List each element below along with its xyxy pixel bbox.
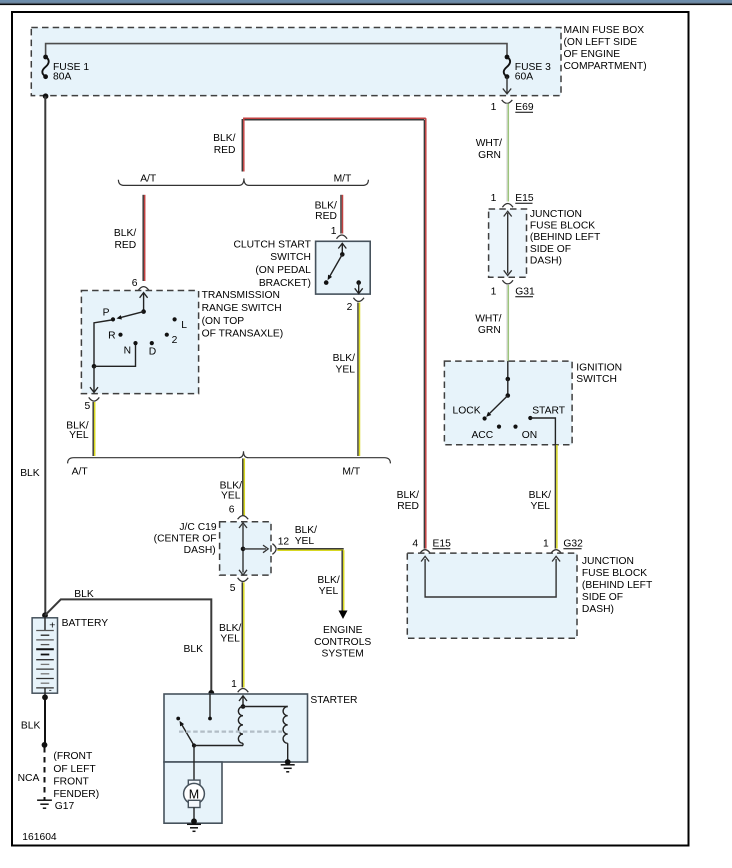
svg-text:J/C C19: J/C C19 (179, 522, 216, 533)
svg-text:MAIN FUSE BOX: MAIN FUSE BOX (564, 25, 645, 36)
svg-text:WHT/: WHT/ (476, 138, 502, 149)
svg-text:FENDER): FENDER) (53, 789, 99, 800)
svg-text:JUNCTION: JUNCTION (582, 556, 634, 567)
svg-text:IGNITION: IGNITION (576, 362, 622, 373)
svg-text:A/T: A/T (72, 466, 89, 477)
svg-text:2: 2 (172, 335, 178, 346)
svg-text:N: N (124, 345, 131, 356)
svg-text:BLK: BLK (74, 589, 94, 600)
svg-text:BLK: BLK (184, 644, 204, 655)
svg-text:(CENTER OF: (CENTER OF (154, 534, 217, 545)
svg-text:L: L (181, 320, 187, 331)
svg-text:5: 5 (84, 401, 90, 412)
svg-text:E15: E15 (433, 539, 452, 550)
svg-text:2: 2 (347, 302, 353, 313)
svg-text:80A: 80A (53, 72, 71, 83)
svg-text:5: 5 (230, 583, 236, 594)
svg-text:SIDE OF: SIDE OF (530, 244, 571, 255)
svg-text:YEL: YEL (295, 536, 315, 547)
svg-text:BLK/: BLK/ (114, 228, 136, 239)
svg-text:RANGE SWITCH: RANGE SWITCH (202, 303, 282, 314)
svg-text:+: + (49, 619, 55, 631)
svg-text:FRONT: FRONT (53, 776, 89, 787)
svg-text:BLK/: BLK/ (333, 353, 355, 364)
svg-text:COMPARTMENT): COMPARTMENT) (564, 61, 647, 72)
svg-text:G31: G31 (515, 287, 535, 298)
svg-text:(BEHIND LEFT: (BEHIND LEFT (582, 580, 653, 591)
svg-text:60A: 60A (515, 72, 533, 83)
svg-text:YEL: YEL (220, 633, 240, 644)
svg-text:BLK: BLK (20, 468, 40, 479)
svg-text:D: D (149, 346, 156, 357)
svg-text:GRN: GRN (478, 150, 501, 161)
svg-text:1: 1 (543, 539, 549, 550)
svg-text:1: 1 (491, 193, 497, 204)
svg-text:TRANSMISSION: TRANSMISSION (202, 290, 280, 301)
svg-text:BLK/: BLK/ (397, 490, 419, 501)
svg-text:161604: 161604 (22, 832, 57, 843)
svg-text:RED: RED (315, 211, 337, 222)
svg-text:WHT/: WHT/ (475, 314, 501, 325)
svg-text:BLK/: BLK/ (315, 201, 337, 212)
svg-text:6: 6 (132, 278, 138, 289)
svg-text:M: M (189, 787, 199, 801)
svg-text:YEL: YEL (319, 586, 339, 597)
svg-text:6: 6 (229, 504, 235, 515)
svg-text:E15: E15 (515, 193, 534, 204)
svg-text:GRN: GRN (478, 325, 501, 336)
svg-text:NCA: NCA (18, 773, 40, 784)
svg-text:G32: G32 (563, 539, 583, 550)
svg-text:(ON TOP: (ON TOP (202, 316, 245, 327)
svg-text:1: 1 (491, 102, 497, 113)
svg-text:M/T: M/T (334, 173, 352, 184)
svg-text:4: 4 (412, 539, 418, 550)
svg-text:OF LEFT: OF LEFT (53, 764, 96, 775)
svg-text:START: START (532, 406, 566, 417)
svg-text:-: - (49, 685, 52, 695)
svg-text:DASH): DASH) (184, 545, 216, 556)
svg-text:E69: E69 (515, 102, 534, 113)
svg-text:R: R (108, 330, 115, 341)
svg-text:BATTERY: BATTERY (62, 618, 109, 629)
svg-text:BLK/: BLK/ (317, 575, 339, 586)
svg-text:P: P (103, 308, 110, 319)
svg-text:OF TRANSAXLE): OF TRANSAXLE) (202, 329, 284, 340)
svg-text:A/T: A/T (140, 173, 157, 184)
svg-text:BLK/: BLK/ (213, 133, 235, 144)
svg-text:1: 1 (331, 226, 337, 237)
svg-text:YEL: YEL (69, 430, 89, 441)
svg-text:STARTER: STARTER (310, 695, 357, 706)
svg-text:(FRONT: (FRONT (53, 751, 93, 762)
svg-text:(ON LEFT SIDE: (ON LEFT SIDE (564, 37, 638, 48)
svg-text:(BEHIND LEFT: (BEHIND LEFT (530, 232, 601, 243)
svg-text:SWITCH: SWITCH (576, 374, 617, 385)
svg-text:SYSTEM: SYSTEM (322, 649, 364, 660)
svg-text:G17: G17 (55, 801, 75, 812)
svg-text:FUSE BLOCK: FUSE BLOCK (582, 568, 647, 579)
svg-text:DASH): DASH) (582, 604, 614, 615)
svg-text:BLK/: BLK/ (529, 490, 551, 501)
svg-text:M/T: M/T (342, 466, 360, 477)
svg-text:JUNCTION: JUNCTION (530, 209, 582, 220)
svg-text:1: 1 (491, 287, 497, 298)
svg-text:(ON PEDAL: (ON PEDAL (255, 265, 311, 276)
svg-text:FUSE BLOCK: FUSE BLOCK (530, 221, 595, 232)
svg-text:BLK/: BLK/ (295, 525, 317, 536)
svg-text:ENGINE: ENGINE (323, 625, 363, 636)
svg-text:SIDE OF: SIDE OF (582, 592, 623, 603)
svg-text:ACC: ACC (471, 430, 493, 441)
svg-text:YEL: YEL (531, 501, 551, 512)
svg-text:DASH): DASH) (530, 255, 562, 266)
svg-text:BLK: BLK (21, 720, 41, 731)
svg-text:LOCK: LOCK (453, 406, 481, 417)
svg-text:OF ENGINE: OF ENGINE (564, 49, 621, 60)
svg-text:12: 12 (278, 537, 290, 548)
svg-text:YEL: YEL (336, 364, 356, 375)
svg-text:SWITCH: SWITCH (270, 252, 311, 263)
svg-text:YEL: YEL (221, 490, 241, 501)
svg-text:RED: RED (214, 145, 236, 156)
svg-text:BRACKET): BRACKET) (259, 278, 311, 289)
svg-text:RED: RED (114, 240, 136, 251)
svg-text:1: 1 (231, 679, 237, 690)
svg-text:CONTROLS: CONTROLS (314, 637, 371, 648)
svg-text:ON: ON (522, 430, 537, 441)
svg-text:BLK/: BLK/ (219, 623, 241, 634)
svg-text:RED: RED (397, 501, 419, 512)
svg-text:CLUTCH START: CLUTCH START (233, 239, 311, 250)
